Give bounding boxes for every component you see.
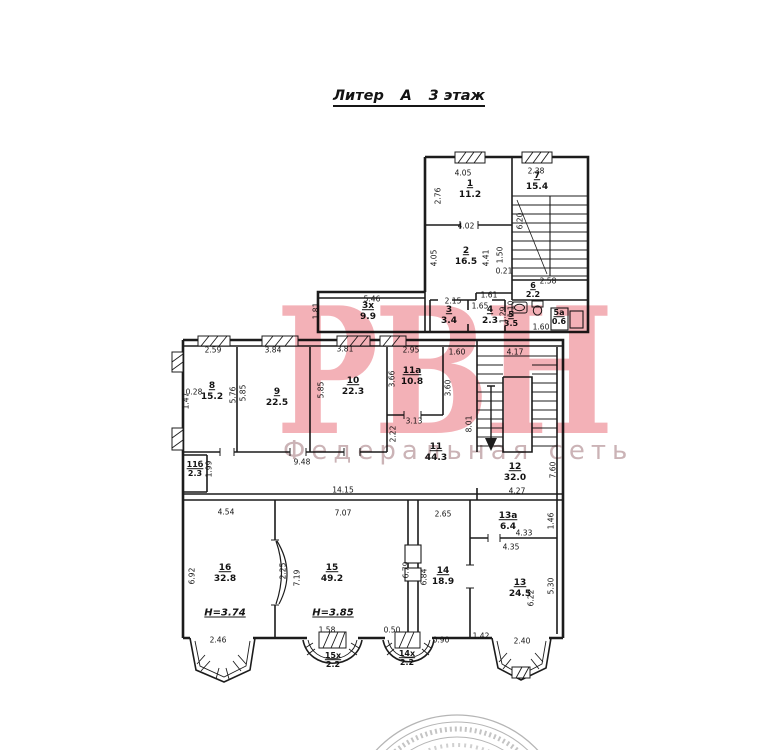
dim-label: 4.41: [482, 250, 491, 267]
dim-label: 0.21: [496, 267, 513, 276]
dim-label: 0.50: [384, 626, 401, 635]
dim-label: 0.90: [433, 636, 450, 645]
room-label-11a: 11а10.8: [401, 366, 423, 388]
room-label-15: 1549.2: [321, 563, 343, 585]
dim-label: 1.60: [449, 348, 466, 357]
room-label-11b: 11б2.3: [187, 461, 204, 479]
dim-label: 7.07: [335, 509, 352, 518]
dim-label: 5.30: [547, 578, 556, 595]
dim-label: 6.92: [188, 568, 197, 585]
stair-direction-arrow: [487, 386, 495, 440]
dim-label: 3.60: [444, 380, 453, 397]
dim-label: 3.81: [337, 345, 354, 354]
round-stamp: [347, 715, 567, 750]
dim-label: 6.22: [527, 590, 536, 607]
staircase-room12: [477, 356, 557, 451]
dim-label: 6.79: [402, 562, 411, 579]
dim-label: 2.76: [434, 188, 443, 205]
room-label-14: 1418.9: [432, 566, 454, 588]
dim-label: 2.25: [279, 563, 288, 580]
dim-label: 1.81: [312, 303, 321, 320]
dim-label: 2.22: [389, 426, 398, 443]
staircase-room7: [512, 196, 588, 276]
room-label-6: 62.2: [526, 282, 540, 300]
room-label-3: 33.4: [441, 305, 457, 327]
dim-label: 2.40: [514, 637, 531, 646]
room-label-3x: 3х9.9: [360, 301, 376, 323]
dim-label: 7.60: [549, 462, 558, 479]
dim-label: 9.48: [294, 458, 311, 467]
dim-label: 4.54: [218, 508, 235, 517]
dim-label: 4.33: [516, 529, 533, 538]
room-label-2: 216.5: [455, 246, 477, 268]
height-label-room15: Н=3.85: [312, 608, 353, 619]
room-label-10: 1022.3: [342, 376, 364, 398]
room-label-12: 1232.0: [504, 462, 526, 484]
room-label-9: 922.5: [266, 387, 288, 409]
dim-label: 1.99: [205, 461, 214, 478]
dim-label: 0.28: [186, 388, 203, 397]
room-label-11: 1144.3: [425, 442, 447, 464]
dim-label: 5.85: [317, 382, 326, 399]
door-ticks: [220, 221, 500, 605]
dim-label: 2.58: [540, 277, 557, 286]
dim-label: 1.46: [547, 513, 556, 530]
dim-label: 6.84: [420, 569, 429, 586]
dim-label: 1.42: [473, 632, 490, 641]
room-label-14x: 14х2.2: [399, 650, 415, 668]
title-letter: А: [401, 88, 412, 104]
dim-label: 5.85: [239, 385, 248, 402]
height-label-room16: Н=3.74: [204, 608, 245, 619]
dim-label: 2.65: [435, 510, 452, 519]
dim-label: 1.60: [533, 323, 550, 332]
room-label-13a: 13а6.4: [499, 511, 518, 533]
dim-label: 14.15: [332, 486, 353, 495]
room-label-1: 111.2: [459, 179, 481, 201]
dim-label: 1.61: [481, 291, 498, 300]
dim-label: 4.17: [507, 348, 524, 357]
dim-label: 3.66: [388, 371, 397, 388]
dim-label: 2.15: [445, 297, 462, 306]
dim-label: 2.46: [210, 636, 227, 645]
dim-label: 3.13: [406, 417, 423, 426]
floor-plan-page: Литер А 3 этаж 111.2 216.5 33.4 42.3 53.…: [0, 0, 768, 750]
dim-label: 7.19: [293, 570, 302, 587]
dim-label: 5.76: [229, 387, 238, 404]
dim-label: 3.84: [265, 346, 282, 355]
room-label-15x: 15х2.2: [325, 652, 341, 670]
dim-label: 5.46: [364, 295, 381, 304]
drawing-title: Литер А 3 этаж: [333, 88, 485, 107]
dim-label: 6.20: [516, 213, 525, 230]
floor-plan-drawing: [0, 0, 768, 750]
bay-windows: [190, 632, 551, 682]
dim-label: 2.95: [403, 346, 420, 355]
room-label-5a: 5а0.6: [552, 309, 566, 327]
title-liter: Литер: [333, 88, 384, 104]
dim-label: 1.58: [319, 626, 336, 635]
dim-label: 1.29: [499, 307, 508, 324]
dim-label: 2.38: [528, 167, 545, 176]
dim-label: 1.10: [507, 301, 516, 318]
dim-label: 4.05: [430, 250, 439, 267]
room-label-16: 1632.8: [214, 563, 236, 585]
dim-label: 8.01: [465, 416, 474, 433]
dim-label: 4.35: [503, 543, 520, 552]
dim-label: 1.50: [496, 247, 505, 264]
dim-label: 1.65: [472, 302, 489, 311]
title-floor: 3 этаж: [429, 88, 485, 104]
dim-label: 4.05: [455, 169, 472, 178]
dim-label: 4.02: [458, 222, 475, 231]
dim-label: 4.27: [509, 487, 526, 496]
dim-label: 2.59: [205, 346, 222, 355]
room-label-8: 815.2: [201, 381, 223, 403]
